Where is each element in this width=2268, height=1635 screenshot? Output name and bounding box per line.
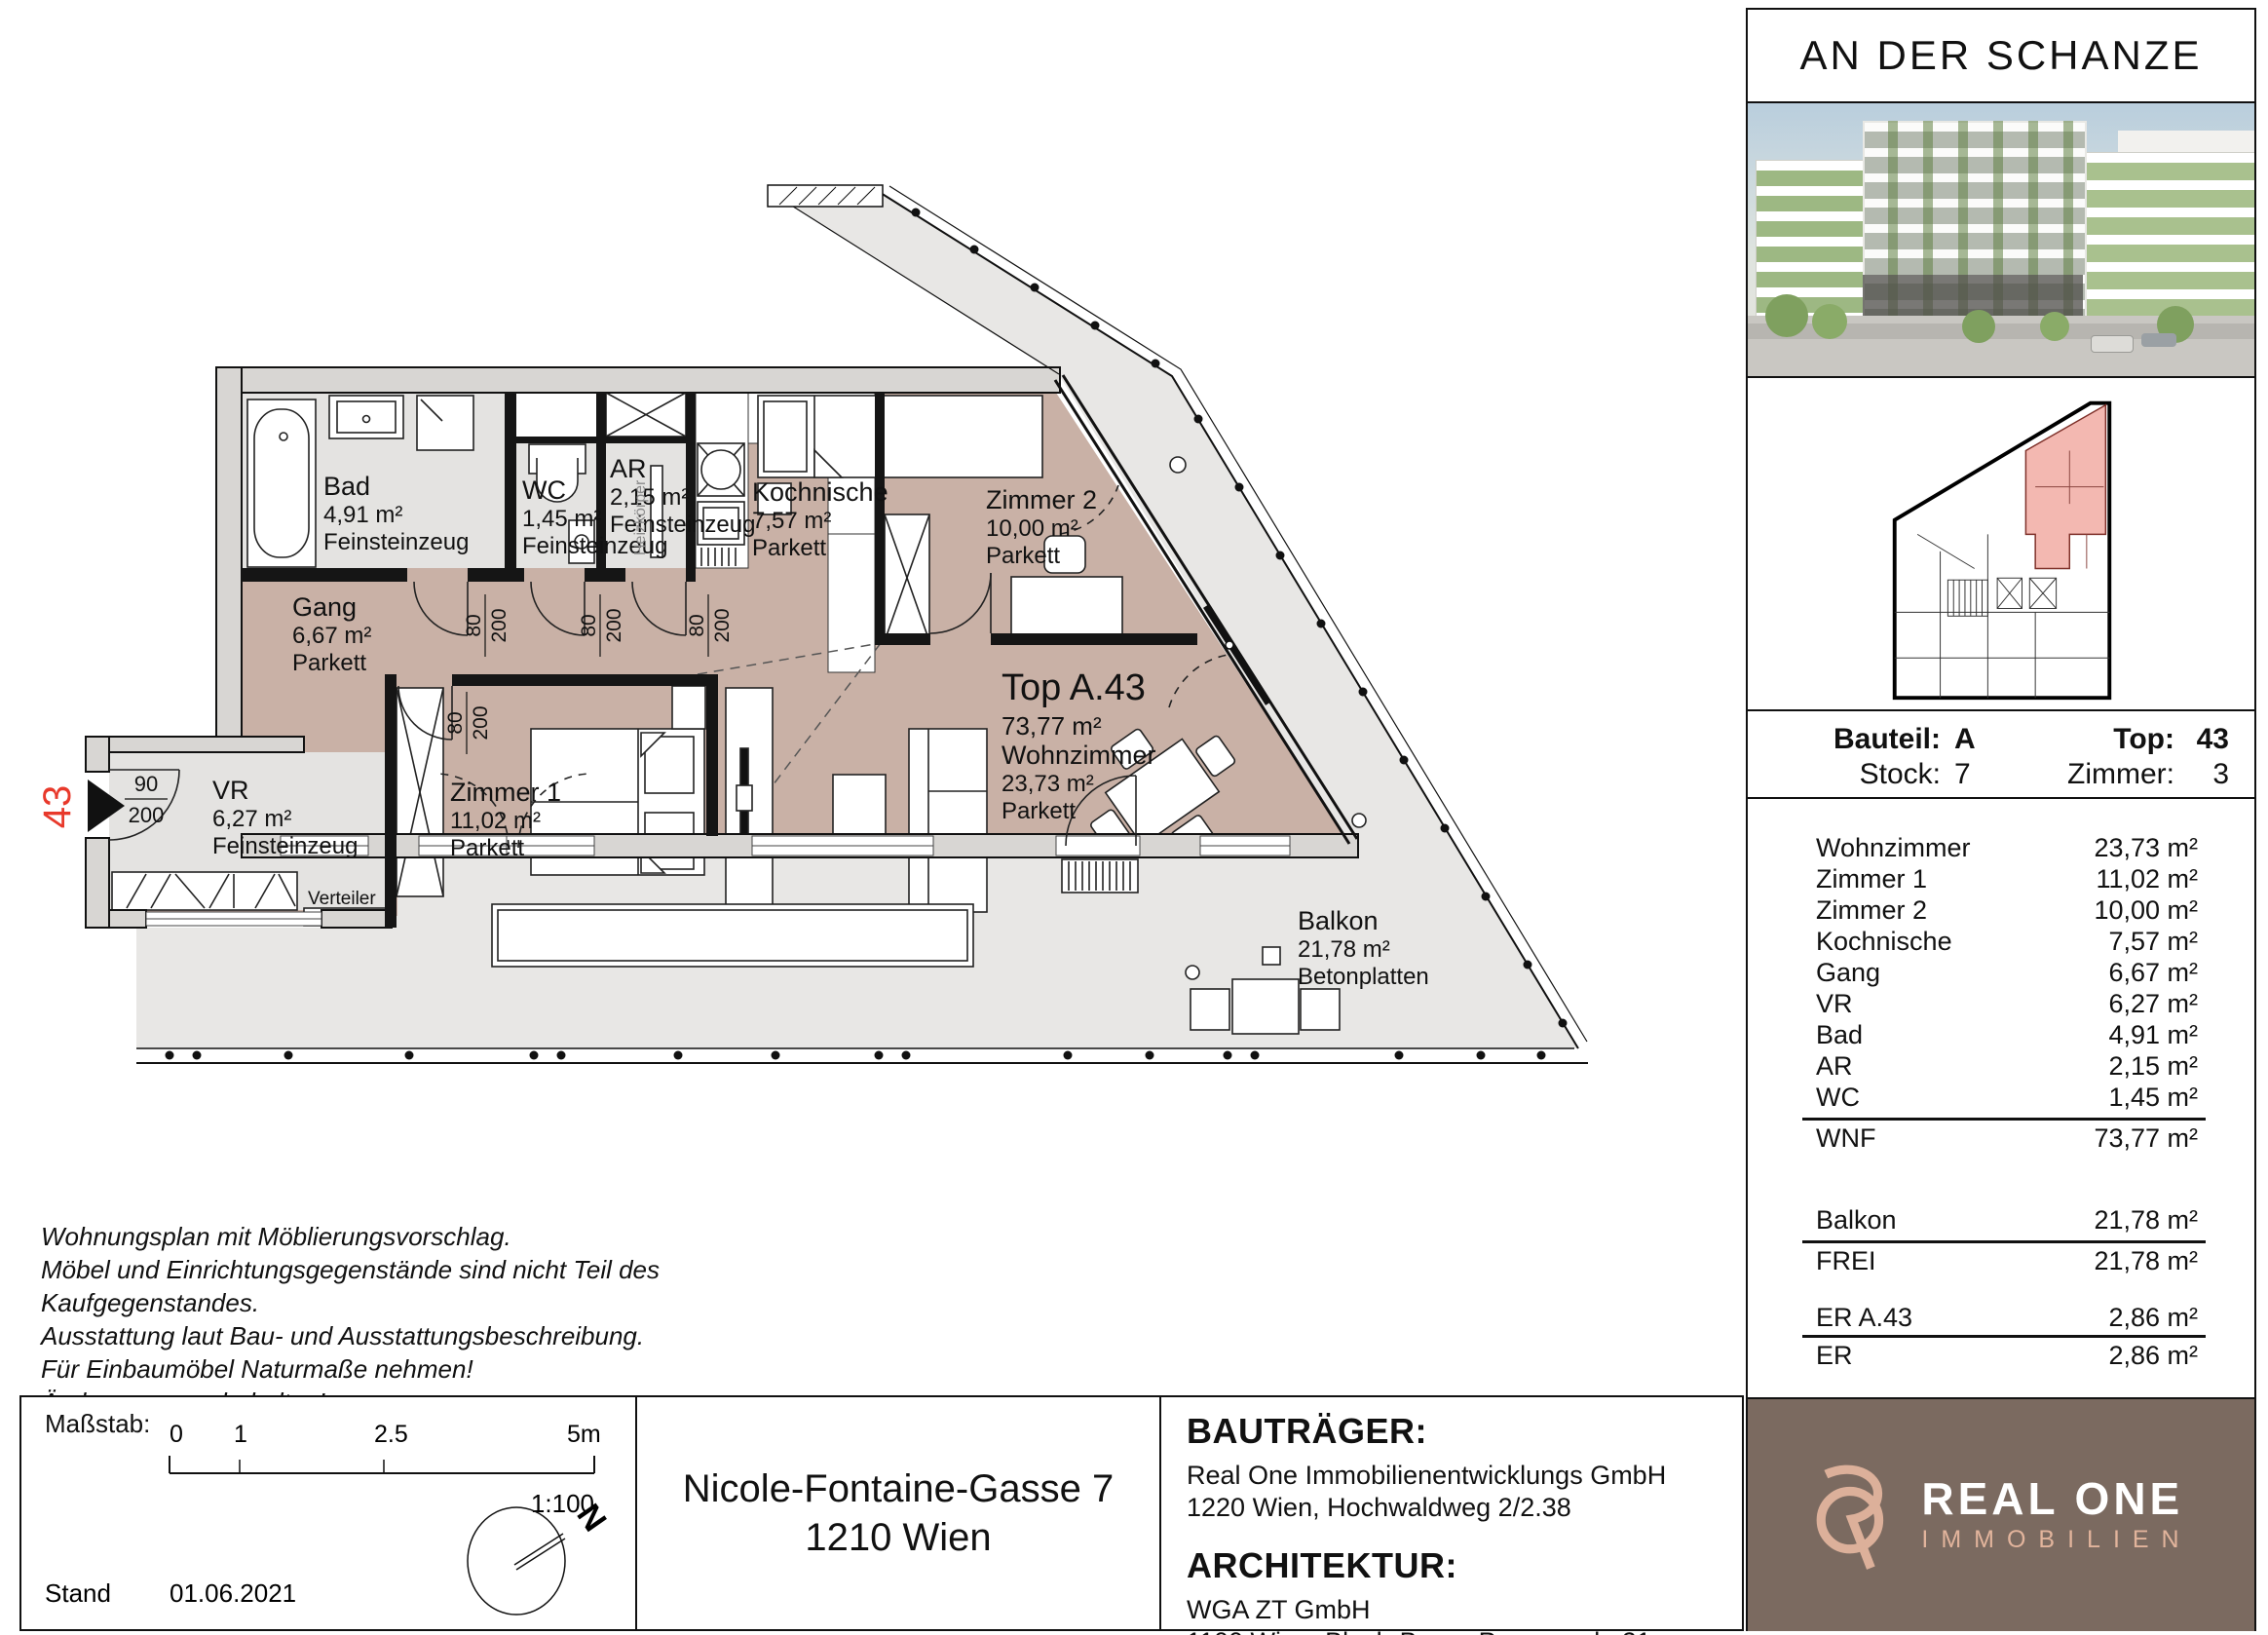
table-row: Kochnische7,57 m² <box>1816 927 2198 957</box>
svg-text:0: 0 <box>170 1421 183 1448</box>
wc-shaft <box>516 393 596 437</box>
bauteil-label: Bauteil: <box>1777 723 1941 756</box>
logo-sub: IMMOBILIEN <box>1921 1523 2191 1556</box>
bauteil-value: A <box>1941 723 2022 756</box>
svg-text:Zimmer 2: Zimmer 2 <box>986 485 1097 514</box>
logo-name: REAL ONE <box>1921 1474 2191 1523</box>
sofa <box>909 729 987 912</box>
svg-text:4,91 m²: 4,91 m² <box>323 502 402 528</box>
svg-text:Parkett: Parkett <box>1002 798 1076 824</box>
address-box: Nicole-Fontaine-Gasse 7 1210 Wien <box>635 1395 1161 1631</box>
entry-number: 43 <box>36 785 79 829</box>
architektur-heading: ARCHITEKTUR: <box>1187 1545 1742 1586</box>
svg-text:200: 200 <box>711 608 734 642</box>
heizkoerper-label: Heizkörper <box>632 479 649 555</box>
balcony-table <box>1232 979 1299 1034</box>
svg-text:Parkett: Parkett <box>450 835 524 861</box>
zimmer-label: Zimmer: <box>2022 758 2174 791</box>
svg-text:1: 1 <box>234 1421 247 1448</box>
sidebar: AN DER SCHANZE <box>1746 8 2256 1631</box>
svg-text:Kochnische: Kochnische <box>752 477 888 507</box>
svg-text:11,02 m²: 11,02 m² <box>450 808 541 834</box>
svg-text:73,77 m²: 73,77 m² <box>1002 711 1102 741</box>
bautraeger-name: Real One Immobilienentwicklungs GmbH <box>1187 1460 1742 1492</box>
address-line2: 1210 Wien <box>805 1513 991 1562</box>
address-line1: Nicole-Fontaine-Gasse 7 <box>683 1464 1114 1513</box>
svg-text:6,27 m²: 6,27 m² <box>212 806 291 832</box>
table-row: Bad4,91 m² <box>1816 1020 2198 1050</box>
svg-text:Parkett: Parkett <box>986 543 1060 569</box>
stock-value: 7 <box>1941 758 2022 791</box>
realone-logo: REAL ONE IMMOBILIEN <box>1748 1397 2254 1631</box>
top-label: Top: <box>2022 723 2174 756</box>
svg-text:10,00 m²: 10,00 m² <box>986 515 1078 542</box>
table-row: WC1,45 m² <box>1816 1083 2198 1113</box>
table-row-er-a43: ER A.432,86 m² <box>1816 1303 2198 1333</box>
svg-text:Wohnzimmer: Wohnzimmer <box>1002 741 1156 770</box>
desk-zimmer2 <box>1011 577 1122 641</box>
scale-bar: 0 1 2.5 5m 1:100 N Stand 01.06.2021 <box>21 1397 635 1629</box>
architektur-name: WGA ZT GmbH <box>1187 1594 1742 1626</box>
svg-text:Bad: Bad <box>323 472 370 501</box>
table-row: AR2,15 m² <box>1816 1051 2198 1082</box>
svg-text:1,45 m²: 1,45 m² <box>522 506 601 532</box>
realone-logo-icon <box>1810 1458 1900 1573</box>
svg-text:Feinsteinzeug: Feinsteinzeug <box>323 529 469 555</box>
svg-text:90: 90 <box>134 772 158 796</box>
building-render-image <box>1748 103 2254 378</box>
svg-text:200: 200 <box>470 705 492 740</box>
floorplan-sheet: 80 200 80 200 80 200 80 200 90 200 <box>0 0 2268 1635</box>
bautraeger-address: 1220 Wien, Hochwaldweg 2/2.38 <box>1187 1492 1742 1524</box>
svg-text:200: 200 <box>129 803 165 827</box>
svg-text:AR: AR <box>610 454 647 483</box>
table-row: Gang6,67 m² <box>1816 958 2198 988</box>
table-row: Wohnzimmer23,73 m² <box>1816 833 2198 863</box>
svg-text:Heizkörper: Heizkörper <box>632 479 649 555</box>
stock-label: Stock: <box>1777 758 1941 791</box>
svg-text:Balkon: Balkon <box>1298 906 1379 935</box>
architektur-address: 1100 Wien, Bloch-Bauer-Promenade 21 <box>1187 1626 1742 1635</box>
table-row-wnf: WNF73,77 m² <box>1816 1123 2198 1154</box>
svg-text:Betonplatten: Betonplatten <box>1298 964 1429 990</box>
unit-info: Bauteil: A Top: 43 Stock: 7 Zimmer: 3 <box>1748 709 2254 799</box>
svg-text:2.5: 2.5 <box>374 1421 408 1448</box>
developer-box: BAUTRÄGER: Real One Immobilienentwicklun… <box>1159 1395 1744 1631</box>
table-row-balkon: Balkon21,78 m² <box>1816 1205 2198 1236</box>
project-title: AN DER SCHANZE <box>1748 10 2254 103</box>
scale-box: Maßstab: 0 1 2.5 5m 1:100 N Stand 01.06.… <box>19 1395 637 1631</box>
svg-text:80: 80 <box>686 614 708 636</box>
svg-text:80: 80 <box>578 614 600 636</box>
table-divider <box>1802 1240 2206 1243</box>
floor-position-miniplan <box>1880 392 2124 705</box>
table-row: VR6,27 m² <box>1816 989 2198 1019</box>
verteiler-label: Verteiler <box>308 889 376 909</box>
nightstand-zimmer1 <box>672 686 705 729</box>
zimmer-value: 3 <box>2174 758 2229 791</box>
svg-text:7,57 m²: 7,57 m² <box>752 508 831 534</box>
svg-text:80: 80 <box>444 711 467 734</box>
balcony-chair <box>1301 989 1340 1030</box>
table-divider <box>1802 1335 2206 1338</box>
svg-text:80: 80 <box>463 614 485 636</box>
svg-text:2,15 m²: 2,15 m² <box>610 484 689 511</box>
svg-text:200: 200 <box>603 608 625 642</box>
bautraeger-heading: BAUTRÄGER: <box>1187 1411 1742 1452</box>
table-divider <box>1802 1118 2206 1121</box>
table-row: Zimmer 210,00 m² <box>1816 895 2198 926</box>
svg-text:Gang: Gang <box>292 592 357 622</box>
vr-wardrobe <box>112 872 297 910</box>
svg-text:23,73 m²: 23,73 m² <box>1002 771 1094 797</box>
svg-text:200: 200 <box>488 608 510 642</box>
north-arrow-icon: N <box>468 1498 614 1615</box>
table-row-er: ER2,86 m² <box>1816 1341 2198 1371</box>
door-grate <box>1062 859 1138 893</box>
table-row-frei: FREI21,78 m² <box>1816 1246 2198 1276</box>
svg-text:Zimmer 1: Zimmer 1 <box>450 778 561 807</box>
svg-text:Feinsteinzeug: Feinsteinzeug <box>212 833 358 859</box>
floorplan-drawing: 80 200 80 200 80 200 80 200 90 200 <box>0 0 1744 1395</box>
svg-text:5m: 5m <box>567 1421 601 1448</box>
svg-text:VR: VR <box>212 776 249 805</box>
balcony-chair <box>1191 989 1229 1030</box>
stand-date: 01.06.2021 <box>170 1578 296 1608</box>
svg-text:21,78 m²: 21,78 m² <box>1298 936 1390 963</box>
disclaimer-text: Wohnungsplan mit Möblierungsvorschlag. M… <box>41 1220 660 1419</box>
svg-text:WC: WC <box>522 475 566 505</box>
svg-text:Parkett: Parkett <box>752 535 826 561</box>
svg-text:Parkett: Parkett <box>292 650 366 676</box>
svg-text:6,67 m²: 6,67 m² <box>292 623 371 649</box>
table-row: Zimmer 111,02 m² <box>1816 864 2198 894</box>
svg-text:Top A.43: Top A.43 <box>1002 667 1146 708</box>
top-value: 43 <box>2174 723 2229 756</box>
stand-label: Stand <box>45 1578 111 1608</box>
